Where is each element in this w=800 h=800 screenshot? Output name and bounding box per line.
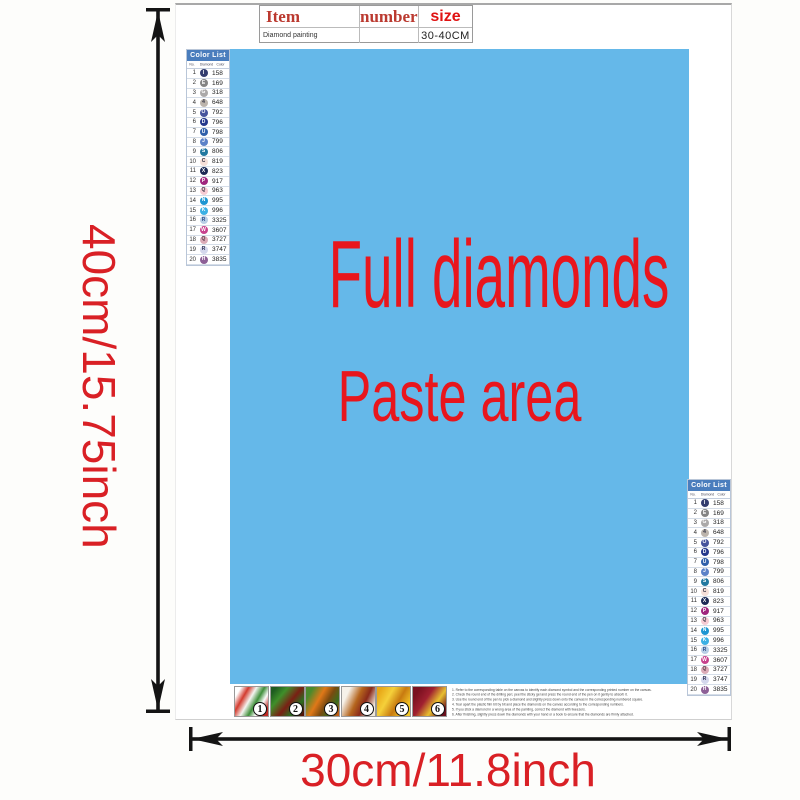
thumbnail-number-badge: 6 — [431, 702, 445, 716]
dmc-color-code: 799 — [711, 568, 732, 575]
row-number: 4 — [187, 100, 197, 106]
diamond-symbol-icon: S — [701, 578, 709, 586]
dmc-color-code: 963 — [210, 187, 231, 194]
dmc-color-code: 3747 — [210, 246, 231, 253]
dmc-color-code: 823 — [210, 168, 231, 175]
dmc-color-code: 963 — [711, 617, 732, 624]
diamond-symbol-icon: R — [200, 216, 208, 224]
dmc-color-code: 3727 — [711, 666, 732, 673]
diamond-symbol-icon: R — [701, 676, 709, 684]
row-number: 14 — [688, 628, 698, 634]
diamond-symbol-icon: Q — [200, 187, 208, 195]
diamond-symbol-icon: I — [200, 69, 208, 77]
row-number: 14 — [187, 198, 197, 204]
pattern-thumbnail: 2 — [270, 686, 305, 717]
row-number: 9 — [688, 579, 698, 585]
color-list-row: 16R3325 — [688, 646, 730, 656]
diamond-symbol-icon: P — [701, 607, 709, 615]
diamond-symbol-icon: H — [701, 686, 709, 694]
row-number: 13 — [187, 188, 197, 194]
vertical-dimension-arrow — [146, 8, 170, 713]
row-number: 10 — [688, 589, 698, 595]
table-cell-number — [360, 28, 419, 43]
row-number: 17 — [187, 227, 197, 233]
color-list-row: 13Q963 — [187, 187, 229, 197]
color-list-row: 11X823 — [187, 167, 229, 177]
dmc-color-code: 3835 — [711, 686, 732, 693]
dmc-color-code: 169 — [711, 510, 732, 517]
color-list-right: Color List No. Diamond Color 1I1582E1693… — [687, 479, 731, 696]
color-list-row: 16R3325 — [187, 216, 229, 226]
diamond-symbol-icon: G — [200, 89, 208, 97]
color-list-row: 5O792 — [688, 538, 730, 548]
row-number: 20 — [187, 257, 197, 263]
dmc-color-code: 798 — [210, 129, 231, 136]
dmc-color-code: 3607 — [711, 657, 732, 664]
diamond-symbol-icon: U — [200, 128, 208, 136]
color-list-rows: 1I1582E1693G318446485O7926D7967U7988J799… — [187, 69, 229, 265]
instruction-line: 6. After finishing, slightly press down … — [452, 713, 698, 718]
dmc-color-code: 169 — [210, 80, 231, 87]
color-list-row: 11X823 — [688, 597, 730, 607]
dmc-color-code: 796 — [210, 119, 231, 126]
table-cell-item-name: Diamond painting — [260, 28, 360, 43]
dmc-color-code: 3607 — [210, 227, 231, 234]
color-list-column-headers: No. Diamond Color — [688, 491, 730, 499]
thumbnail-number-badge: 2 — [289, 702, 303, 716]
instruction-text-block: 1. Refer to the corresponding table on t… — [452, 688, 698, 718]
row-number: 12 — [187, 178, 197, 184]
color-list-row: 18Q3727 — [688, 666, 730, 676]
diamond-symbol-icon: H — [200, 256, 208, 264]
row-number: 16 — [688, 647, 698, 653]
pattern-thumbnail: 5 — [376, 686, 411, 717]
row-number: 11 — [187, 168, 197, 174]
color-list-row: 12P917 — [688, 607, 730, 617]
row-number: 1 — [187, 70, 197, 76]
color-list-row: 18Q3727 — [187, 236, 229, 246]
height-dimension-label: 40cm/15.75inch — [76, 224, 122, 538]
row-number: 4 — [688, 530, 698, 536]
color-list-row: 15K996 — [187, 206, 229, 216]
dmc-color-code: 3727 — [210, 236, 231, 243]
row-number: 8 — [688, 569, 698, 575]
row-number: 5 — [187, 110, 197, 116]
dmc-color-code: 806 — [210, 148, 231, 155]
diamond-symbol-icon: W — [200, 226, 208, 234]
pattern-thumbnail: 4 — [341, 686, 376, 717]
color-list-row: 8J799 — [187, 138, 229, 148]
diamond-symbol-icon: Q — [200, 236, 208, 244]
diamond-symbol-icon: K — [200, 207, 208, 215]
row-number: 11 — [688, 598, 698, 604]
diamond-symbol-icon: W — [701, 656, 709, 664]
dmc-color-code: 819 — [711, 588, 732, 595]
pattern-thumbnail: 3 — [305, 686, 340, 717]
dmc-color-code: 796 — [711, 549, 732, 556]
row-number: 8 — [187, 139, 197, 145]
pattern-thumbnail: 1 — [234, 686, 269, 717]
dmc-color-code: 799 — [210, 138, 231, 145]
table-header-number: number — [360, 6, 419, 28]
dmc-color-code: 3325 — [210, 217, 231, 224]
column-no: No. — [189, 63, 195, 66]
diamond-symbol-icon: X — [701, 597, 709, 605]
dmc-color-code: 158 — [711, 500, 732, 507]
dmc-color-code: 917 — [210, 178, 231, 185]
row-number: 18 — [688, 667, 698, 673]
diamond-symbol-icon: I — [701, 499, 709, 507]
diamond-symbol-icon: D — [701, 548, 709, 556]
diamond-symbol-icon: 4 — [701, 529, 709, 537]
table-header-size: size — [419, 6, 472, 28]
item-size-table: Item number size Diamond painting 30-40C… — [259, 5, 473, 43]
diamond-symbol-icon: N — [200, 197, 208, 205]
diamond-symbol-icon: C — [200, 158, 208, 166]
diamond-symbol-icon: 4 — [200, 99, 208, 107]
color-list-row: 13Q963 — [688, 617, 730, 627]
dmc-color-code: 996 — [711, 637, 732, 644]
diamond-symbol-icon: E — [701, 509, 709, 517]
thumbnail-number-badge: 4 — [360, 702, 374, 716]
row-number: 3 — [688, 520, 698, 526]
color-list-row: 19R3747 — [688, 675, 730, 685]
color-list-column-headers: No. Diamond Color — [187, 61, 229, 69]
row-number: 9 — [187, 149, 197, 155]
color-list-rows: 1I1582E1693G318446485O7926D7967U7988J799… — [688, 499, 730, 695]
width-dimension-label: 30cm/11.8inch — [298, 747, 598, 793]
color-list-title: Color List — [688, 480, 730, 491]
color-list-row: 7U798 — [688, 558, 730, 568]
row-number: 15 — [688, 638, 698, 644]
diamond-symbol-icon: N — [701, 627, 709, 635]
dmc-color-code: 3747 — [711, 676, 732, 683]
dmc-color-code: 648 — [210, 99, 231, 106]
color-list-row: 15K996 — [688, 636, 730, 646]
row-number: 6 — [187, 119, 197, 125]
color-list-row: 10C819 — [688, 587, 730, 597]
diamond-symbol-icon: P — [200, 177, 208, 185]
color-list-row: 2E169 — [688, 509, 730, 519]
color-list-row: 7U798 — [187, 128, 229, 138]
color-list-row: 3G318 — [187, 89, 229, 99]
color-list-row: 1I158 — [187, 69, 229, 79]
color-list-title: Color List — [187, 50, 229, 61]
dmc-color-code: 806 — [711, 578, 732, 585]
color-list-row: 9S806 — [688, 577, 730, 587]
diamond-symbol-icon: J — [200, 138, 208, 146]
color-list-row: 6D796 — [688, 548, 730, 558]
row-number: 15 — [187, 208, 197, 214]
diamond-symbol-icon: Q — [701, 617, 709, 625]
row-number: 18 — [187, 237, 197, 243]
color-list-row: 10C819 — [187, 157, 229, 167]
paste-area-title-line1: Full diamonds — [329, 227, 591, 323]
step-thumbnail-strip: 123456 — [234, 686, 447, 717]
diamond-symbol-icon: O — [701, 539, 709, 547]
color-list-row: 9S806 — [187, 147, 229, 157]
row-number: 1 — [688, 500, 698, 506]
thumbnail-number-badge: 3 — [324, 702, 338, 716]
dmc-color-code: 792 — [711, 539, 732, 546]
dmc-color-code: 798 — [711, 559, 732, 566]
color-list-row: 3G318 — [688, 519, 730, 529]
color-list-row: 5O792 — [187, 108, 229, 118]
dmc-color-code: 792 — [210, 109, 231, 116]
thumbnail-number-badge: 1 — [253, 702, 267, 716]
color-list-row: 12P917 — [187, 177, 229, 187]
row-number: 5 — [688, 540, 698, 546]
row-number: 10 — [187, 159, 197, 165]
dmc-color-code: 917 — [711, 608, 732, 615]
column-color: Color — [716, 493, 728, 496]
column-diamond: Diamond — [200, 63, 207, 66]
canvas-page: Item number size Diamond painting 30-40C… — [175, 3, 732, 720]
color-list-row: 17W3607 — [187, 226, 229, 236]
paste-area: Full diamonds Paste area — [230, 49, 689, 684]
dmc-color-code: 3835 — [210, 256, 231, 263]
column-color: Color — [215, 63, 227, 66]
paste-area-title-line2: Paste area — [299, 361, 620, 433]
diamond-symbol-icon: E — [200, 79, 208, 87]
color-list-row: 19R3747 — [187, 245, 229, 255]
thumbnail-number-badge: 5 — [395, 702, 409, 716]
row-number: 6 — [688, 549, 698, 555]
dmc-color-code: 996 — [210, 207, 231, 214]
dmc-color-code: 995 — [210, 197, 231, 204]
color-list-row: 14N995 — [187, 196, 229, 206]
color-list-row: 17W3607 — [688, 656, 730, 666]
table-cell-size: 30-40CM — [419, 28, 472, 43]
row-number: 17 — [688, 657, 698, 663]
color-list-row: 1I158 — [688, 499, 730, 509]
row-number: 7 — [688, 559, 698, 565]
row-number: 19 — [688, 677, 698, 683]
color-list-row: 44648 — [688, 528, 730, 538]
diamond-symbol-icon: U — [701, 558, 709, 566]
row-number: 19 — [187, 247, 197, 253]
color-list-row: 6D796 — [187, 118, 229, 128]
diamond-symbol-icon: S — [200, 148, 208, 156]
row-number: 13 — [688, 618, 698, 624]
color-list-row: 44648 — [187, 98, 229, 108]
row-number: 7 — [187, 129, 197, 135]
row-number: 3 — [187, 90, 197, 96]
color-list-left: Color List No. Diamond Color 1I1582E1693… — [186, 49, 230, 266]
row-number: 2 — [688, 510, 698, 516]
color-list-row: 14N995 — [688, 626, 730, 636]
column-diamond: Diamond — [701, 493, 708, 496]
column-no: No. — [690, 493, 696, 496]
dmc-color-code: 318 — [711, 519, 732, 526]
dmc-color-code: 819 — [210, 158, 231, 165]
color-list-row: 8J799 — [688, 568, 730, 578]
dmc-color-code: 648 — [711, 529, 732, 536]
dmc-color-code: 318 — [210, 89, 231, 96]
diamond-symbol-icon: R — [701, 646, 709, 654]
diamond-symbol-icon: G — [701, 519, 709, 527]
row-number: 2 — [187, 80, 197, 86]
diamond-symbol-icon: K — [701, 637, 709, 645]
diamond-symbol-icon: X — [200, 167, 208, 175]
dmc-color-code: 3325 — [711, 647, 732, 654]
dmc-color-code: 995 — [711, 627, 732, 634]
diamond-symbol-icon: Q — [701, 666, 709, 674]
diamond-symbol-icon: J — [701, 568, 709, 576]
color-list-row: 2E169 — [187, 79, 229, 89]
diamond-symbol-icon: O — [200, 109, 208, 117]
row-number: 12 — [688, 608, 698, 614]
dmc-color-code: 823 — [711, 598, 732, 605]
diamond-symbol-icon: C — [701, 588, 709, 596]
color-list-row: 20H3835 — [187, 255, 229, 265]
diamond-symbol-icon: D — [200, 118, 208, 126]
table-header-item: Item — [260, 6, 360, 28]
dmc-color-code: 158 — [210, 70, 231, 77]
diamond-symbol-icon: R — [200, 246, 208, 254]
row-number: 16 — [187, 217, 197, 223]
pattern-thumbnail: 6 — [412, 686, 447, 717]
